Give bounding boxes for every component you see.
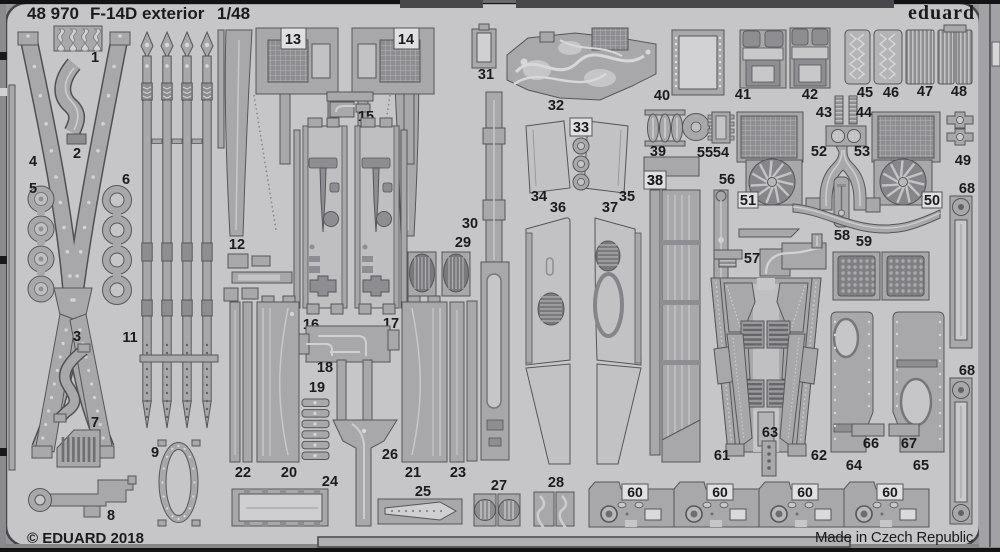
svg-text:© EDUARD 2018: © EDUARD 2018 — [27, 530, 144, 547]
svg-text:56: 56 — [719, 172, 735, 188]
svg-text:31: 31 — [478, 67, 494, 83]
svg-text:43: 43 — [816, 105, 832, 121]
svg-text:6: 6 — [122, 172, 130, 188]
svg-text:Made in Czech Republic: Made in Czech Republic — [815, 529, 974, 546]
svg-text:62: 62 — [811, 448, 827, 464]
svg-text:27: 27 — [491, 478, 507, 494]
svg-text:3: 3 — [73, 329, 81, 345]
svg-text:44: 44 — [856, 105, 872, 121]
svg-text:4: 4 — [29, 154, 37, 170]
svg-text:34: 34 — [531, 189, 547, 205]
svg-text:8: 8 — [107, 508, 115, 524]
svg-text:20: 20 — [281, 465, 297, 481]
svg-text:49: 49 — [955, 153, 971, 169]
svg-text:67: 67 — [901, 436, 917, 452]
svg-text:25: 25 — [415, 484, 431, 500]
svg-text:11: 11 — [122, 330, 137, 346]
svg-text:2: 2 — [73, 146, 81, 162]
svg-text:23: 23 — [450, 465, 466, 481]
svg-text:61: 61 — [714, 448, 730, 464]
svg-text:48 970: 48 970 — [27, 4, 79, 23]
svg-text:59: 59 — [856, 234, 872, 250]
svg-text:68: 68 — [959, 363, 975, 379]
svg-text:40: 40 — [654, 88, 670, 104]
svg-text:19: 19 — [309, 380, 325, 396]
svg-text:57: 57 — [744, 251, 760, 267]
svg-text:50: 50 — [924, 193, 940, 209]
svg-text:64: 64 — [846, 458, 862, 474]
svg-text:1: 1 — [91, 50, 99, 66]
svg-text:60: 60 — [882, 484, 898, 500]
svg-text:37: 37 — [602, 200, 618, 216]
svg-text:46: 46 — [883, 85, 899, 101]
svg-text:38: 38 — [647, 173, 663, 189]
svg-text:13: 13 — [285, 32, 301, 48]
svg-text:12: 12 — [229, 237, 245, 253]
svg-text:63: 63 — [762, 425, 778, 441]
svg-text:eduard: eduard — [908, 2, 975, 24]
svg-text:68: 68 — [959, 181, 975, 197]
svg-text:9: 9 — [151, 445, 159, 461]
svg-text:54: 54 — [713, 145, 729, 161]
svg-text:7: 7 — [91, 415, 99, 431]
svg-text:36: 36 — [550, 200, 566, 216]
svg-text:29: 29 — [455, 235, 471, 251]
svg-text:22: 22 — [235, 465, 251, 481]
svg-text:48: 48 — [951, 84, 967, 100]
svg-text:24: 24 — [322, 474, 338, 490]
svg-text:53: 53 — [854, 144, 870, 160]
svg-text:47: 47 — [917, 84, 933, 100]
svg-text:65: 65 — [913, 458, 929, 474]
svg-text:F-14D exterior: F-14D exterior — [90, 4, 205, 23]
svg-text:30: 30 — [462, 216, 478, 232]
svg-text:1/48: 1/48 — [217, 4, 250, 23]
svg-text:5: 5 — [29, 181, 37, 197]
svg-text:18: 18 — [317, 360, 333, 376]
svg-text:60: 60 — [712, 484, 728, 500]
svg-text:42: 42 — [802, 87, 818, 103]
svg-text:28: 28 — [548, 475, 564, 491]
svg-text:58: 58 — [834, 228, 850, 244]
svg-text:51: 51 — [740, 193, 756, 209]
svg-text:33: 33 — [573, 120, 589, 136]
svg-text:45: 45 — [857, 85, 873, 101]
svg-text:66: 66 — [863, 436, 879, 452]
svg-text:60: 60 — [627, 484, 643, 500]
svg-text:14: 14 — [398, 32, 414, 48]
svg-text:41: 41 — [735, 87, 751, 103]
svg-text:52: 52 — [811, 144, 827, 160]
svg-text:35: 35 — [619, 189, 635, 205]
svg-text:32: 32 — [548, 98, 564, 114]
svg-text:60: 60 — [797, 484, 813, 500]
svg-text:21: 21 — [405, 465, 421, 481]
svg-text:26: 26 — [382, 447, 398, 463]
